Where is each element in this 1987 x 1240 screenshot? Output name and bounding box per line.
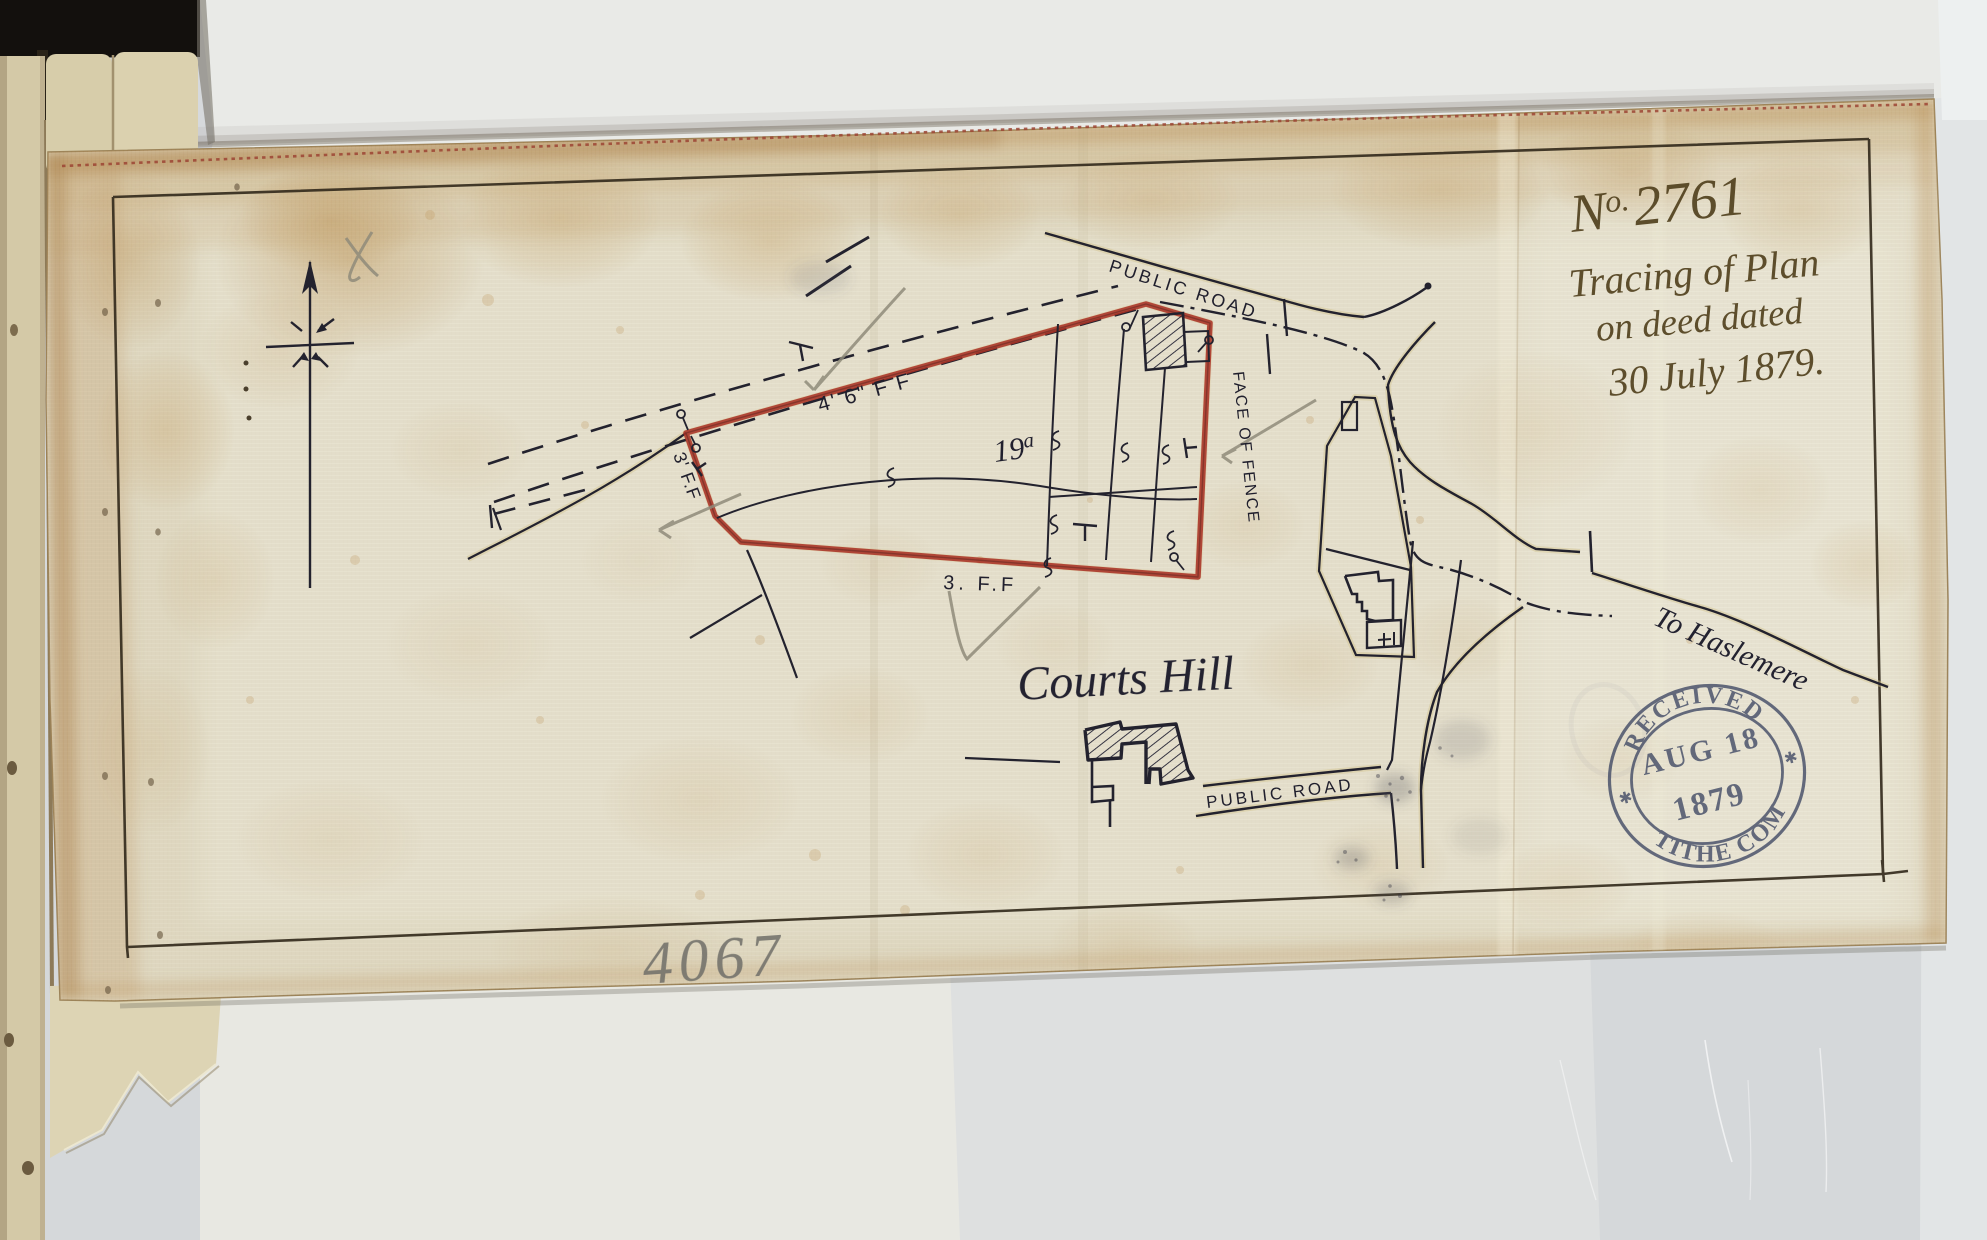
svg-text:3. F.F: 3. F.F: [943, 572, 1018, 597]
svg-text:4067: 4067: [640, 921, 788, 997]
